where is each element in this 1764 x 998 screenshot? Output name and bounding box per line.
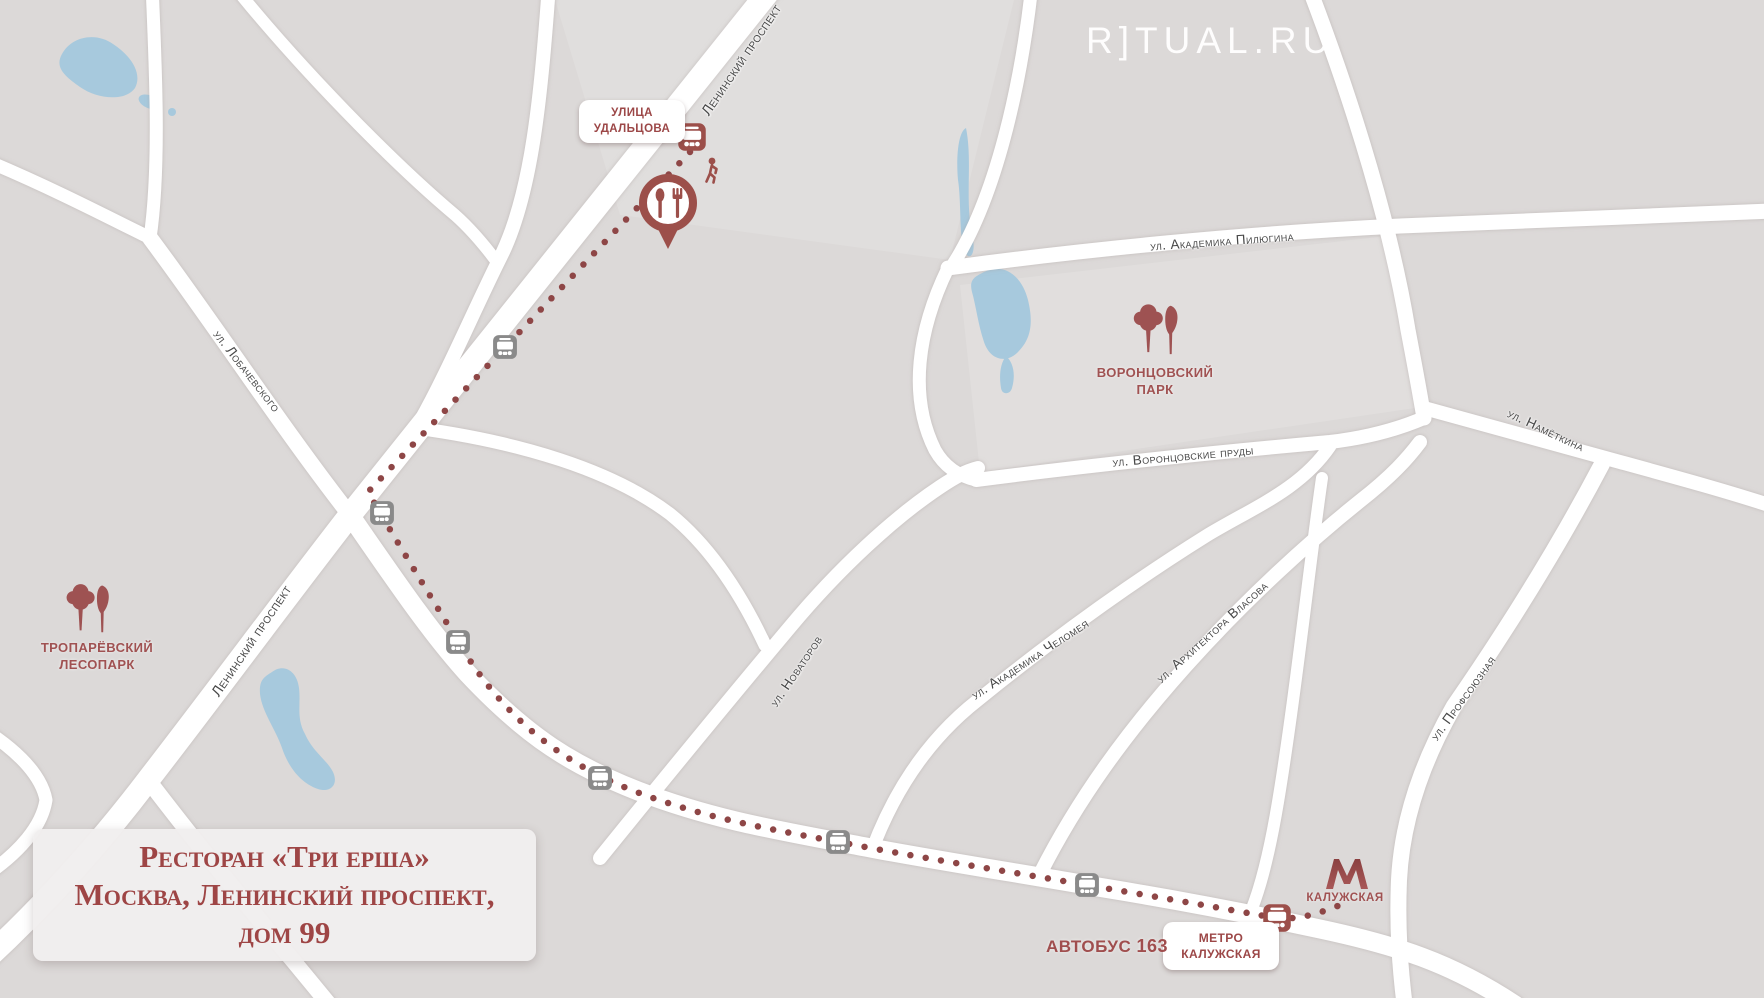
pond-top-left — [59, 37, 137, 97]
bus-stop-icon — [826, 830, 850, 854]
bus-stop-icon — [588, 766, 612, 790]
metro-station-name: КАЛУЖСКАЯ — [1306, 892, 1383, 904]
bus-stop-label-udaltsova: УЛИЦАУДАЛЬЦОВА — [579, 100, 685, 143]
bus-stop-icon — [370, 501, 394, 525]
road-vlasova — [1040, 442, 1420, 874]
pond-leninsky — [260, 668, 335, 790]
bus-route-number: АВТОБУС 163 — [1046, 936, 1168, 957]
road-chelomeya — [872, 446, 1330, 850]
park-label-vorontsovsky: ВОРОНЦОВСКИЙПАРК — [1097, 365, 1214, 399]
bus-stop-icon — [493, 335, 517, 359]
restaurant-house-line: дом 99 — [33, 914, 536, 952]
road-corner-north — [150, 0, 156, 238]
metro-m-icon — [1326, 859, 1368, 889]
brand-logo: R]TUAL.RU — [1086, 20, 1335, 62]
road-center-connector — [416, 428, 765, 645]
restaurant-pin-icon — [643, 178, 693, 249]
address-card: Ресторан «Три ерша» Москва, Ленинский пр… — [33, 829, 536, 961]
map-canvas: R]TUAL.RU Ленинский проспект Ленинский п… — [0, 0, 1764, 998]
restaurant-name: Ресторан «Три ерша» — [33, 838, 536, 876]
pond-top-left-dot — [168, 108, 176, 116]
road-leninsky-prospekt — [0, 0, 778, 960]
bus-stop-icon — [446, 630, 470, 654]
road-topleft-diagonal — [233, 0, 497, 262]
road-metro-side — [1248, 478, 1322, 918]
park-trees-icon — [67, 584, 109, 632]
restaurant-address-line: Москва, Ленинский проспект, — [33, 876, 536, 914]
bus-stop-icon — [1075, 873, 1099, 897]
road-corner-west — [0, 160, 150, 238]
bus-stop-label-metro-kaluzhskaya: МЕТРОКАЛУЖСКАЯ — [1163, 922, 1279, 970]
park-label-troparevsky: ТРОПАРЁВСКИЙЛЕСОПАРК — [41, 640, 153, 674]
